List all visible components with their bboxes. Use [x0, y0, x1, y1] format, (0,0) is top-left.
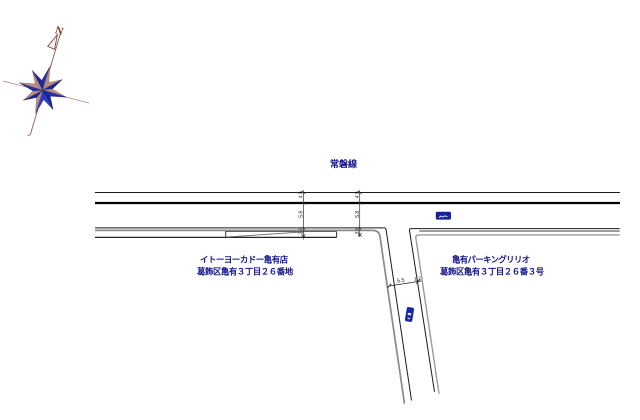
svg-text:5.5: 5.5 — [397, 277, 406, 284]
svg-text:4.5: 4.5 — [355, 191, 361, 198]
svg-text:1.2: 1.2 — [414, 276, 422, 283]
svg-text:5.8: 5.8 — [299, 211, 305, 218]
svg-text:亀有パーキングリリオ: 亀有パーキングリリオ — [452, 255, 530, 265]
svg-text:イトーヨーカドー亀有店: イトーヨーカドー亀有店 — [200, 255, 289, 265]
svg-text:5.8: 5.8 — [355, 211, 361, 218]
svg-text:葛飾区亀有３丁目２６番地: 葛飾区亀有３丁目２６番地 — [196, 267, 294, 277]
svg-text:常磐線: 常磐線 — [330, 158, 357, 169]
svg-text:葛飾区亀有３丁目２６番３号: 葛飾区亀有３丁目２６番３号 — [439, 267, 544, 277]
svg-text:3.6: 3.6 — [299, 227, 305, 234]
svg-text:3.6: 3.6 — [355, 227, 361, 234]
svg-text:4.5: 4.5 — [299, 191, 305, 198]
